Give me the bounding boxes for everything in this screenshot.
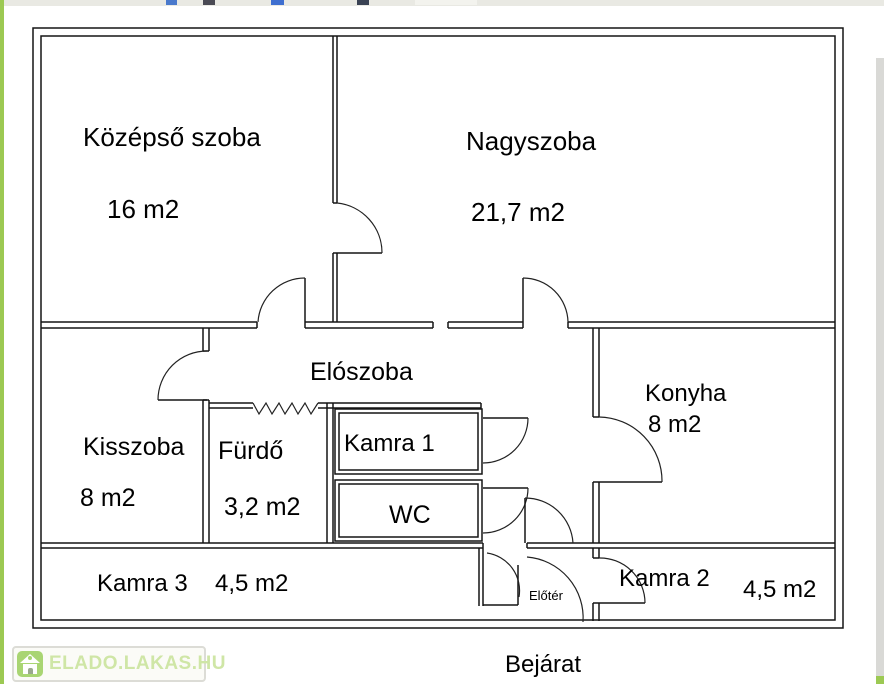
room-label-konyha: Konyha xyxy=(645,380,727,407)
wall-kamra2 xyxy=(593,548,599,621)
zigzag-partition xyxy=(253,403,318,414)
room-label-eloszoba: Elószoba xyxy=(310,358,413,386)
room-label-kozepso: Középső szoba xyxy=(83,122,261,152)
watermark-text: ELADO.LAKAS.HU xyxy=(49,653,226,675)
door-eloter-inner xyxy=(487,553,520,597)
house-icon xyxy=(17,651,43,677)
door-nagyszoba-wall xyxy=(337,203,382,253)
watermark-badge: ELADO.LAKAS.HU xyxy=(12,646,206,682)
room-area-kamra3: 4,5 m2 xyxy=(215,570,288,597)
room-area-konyha: 8 m2 xyxy=(648,411,701,438)
door-corridor-eloter xyxy=(525,498,573,543)
room-area-kamra2: 4,5 m2 xyxy=(743,576,816,603)
room-label-kisszoba: Kisszoba xyxy=(83,433,185,461)
room-label-wc: WC xyxy=(389,501,431,529)
wall-bottom-band xyxy=(41,543,835,548)
room-label-kamra3: Kamra 3 xyxy=(97,570,188,597)
door-nagyszoba-bottom xyxy=(523,278,568,322)
wall-kozepso-nagyszoba xyxy=(333,36,337,322)
room-label-kamra1: Kamra 1 xyxy=(344,430,435,457)
room-area-nagyszoba: 21,7 m2 xyxy=(471,197,565,227)
wall-konyha xyxy=(593,328,599,543)
room-label-kamra2: Kamra 2 xyxy=(619,565,710,592)
room-label-eloter: Előtér xyxy=(529,588,564,603)
room-area-kozepso: 16 m2 xyxy=(107,194,179,224)
entrance-label: Bejárat xyxy=(505,651,581,678)
wall-top-band xyxy=(41,322,835,328)
room-label-nagyszoba: Nagyszoba xyxy=(466,126,597,156)
room-area-kisszoba: 8 m2 xyxy=(80,484,136,512)
wall-furdo xyxy=(327,403,333,543)
door-kozepso xyxy=(258,278,305,322)
wall-kisszoba xyxy=(203,328,209,543)
door-kamra1 xyxy=(483,418,528,463)
floor-plan-drawing: Középső szoba 16 m2 Nagyszoba 21,7 m2 El… xyxy=(0,0,884,684)
door-wc xyxy=(483,488,528,533)
room-area-furdo: 3,2 m2 xyxy=(224,493,300,521)
room-label-furdo: Fürdő xyxy=(218,437,283,465)
floor-plan-page: Középső szoba 16 m2 Nagyszoba 21,7 m2 El… xyxy=(0,0,884,684)
door-kisszoba xyxy=(158,351,207,400)
